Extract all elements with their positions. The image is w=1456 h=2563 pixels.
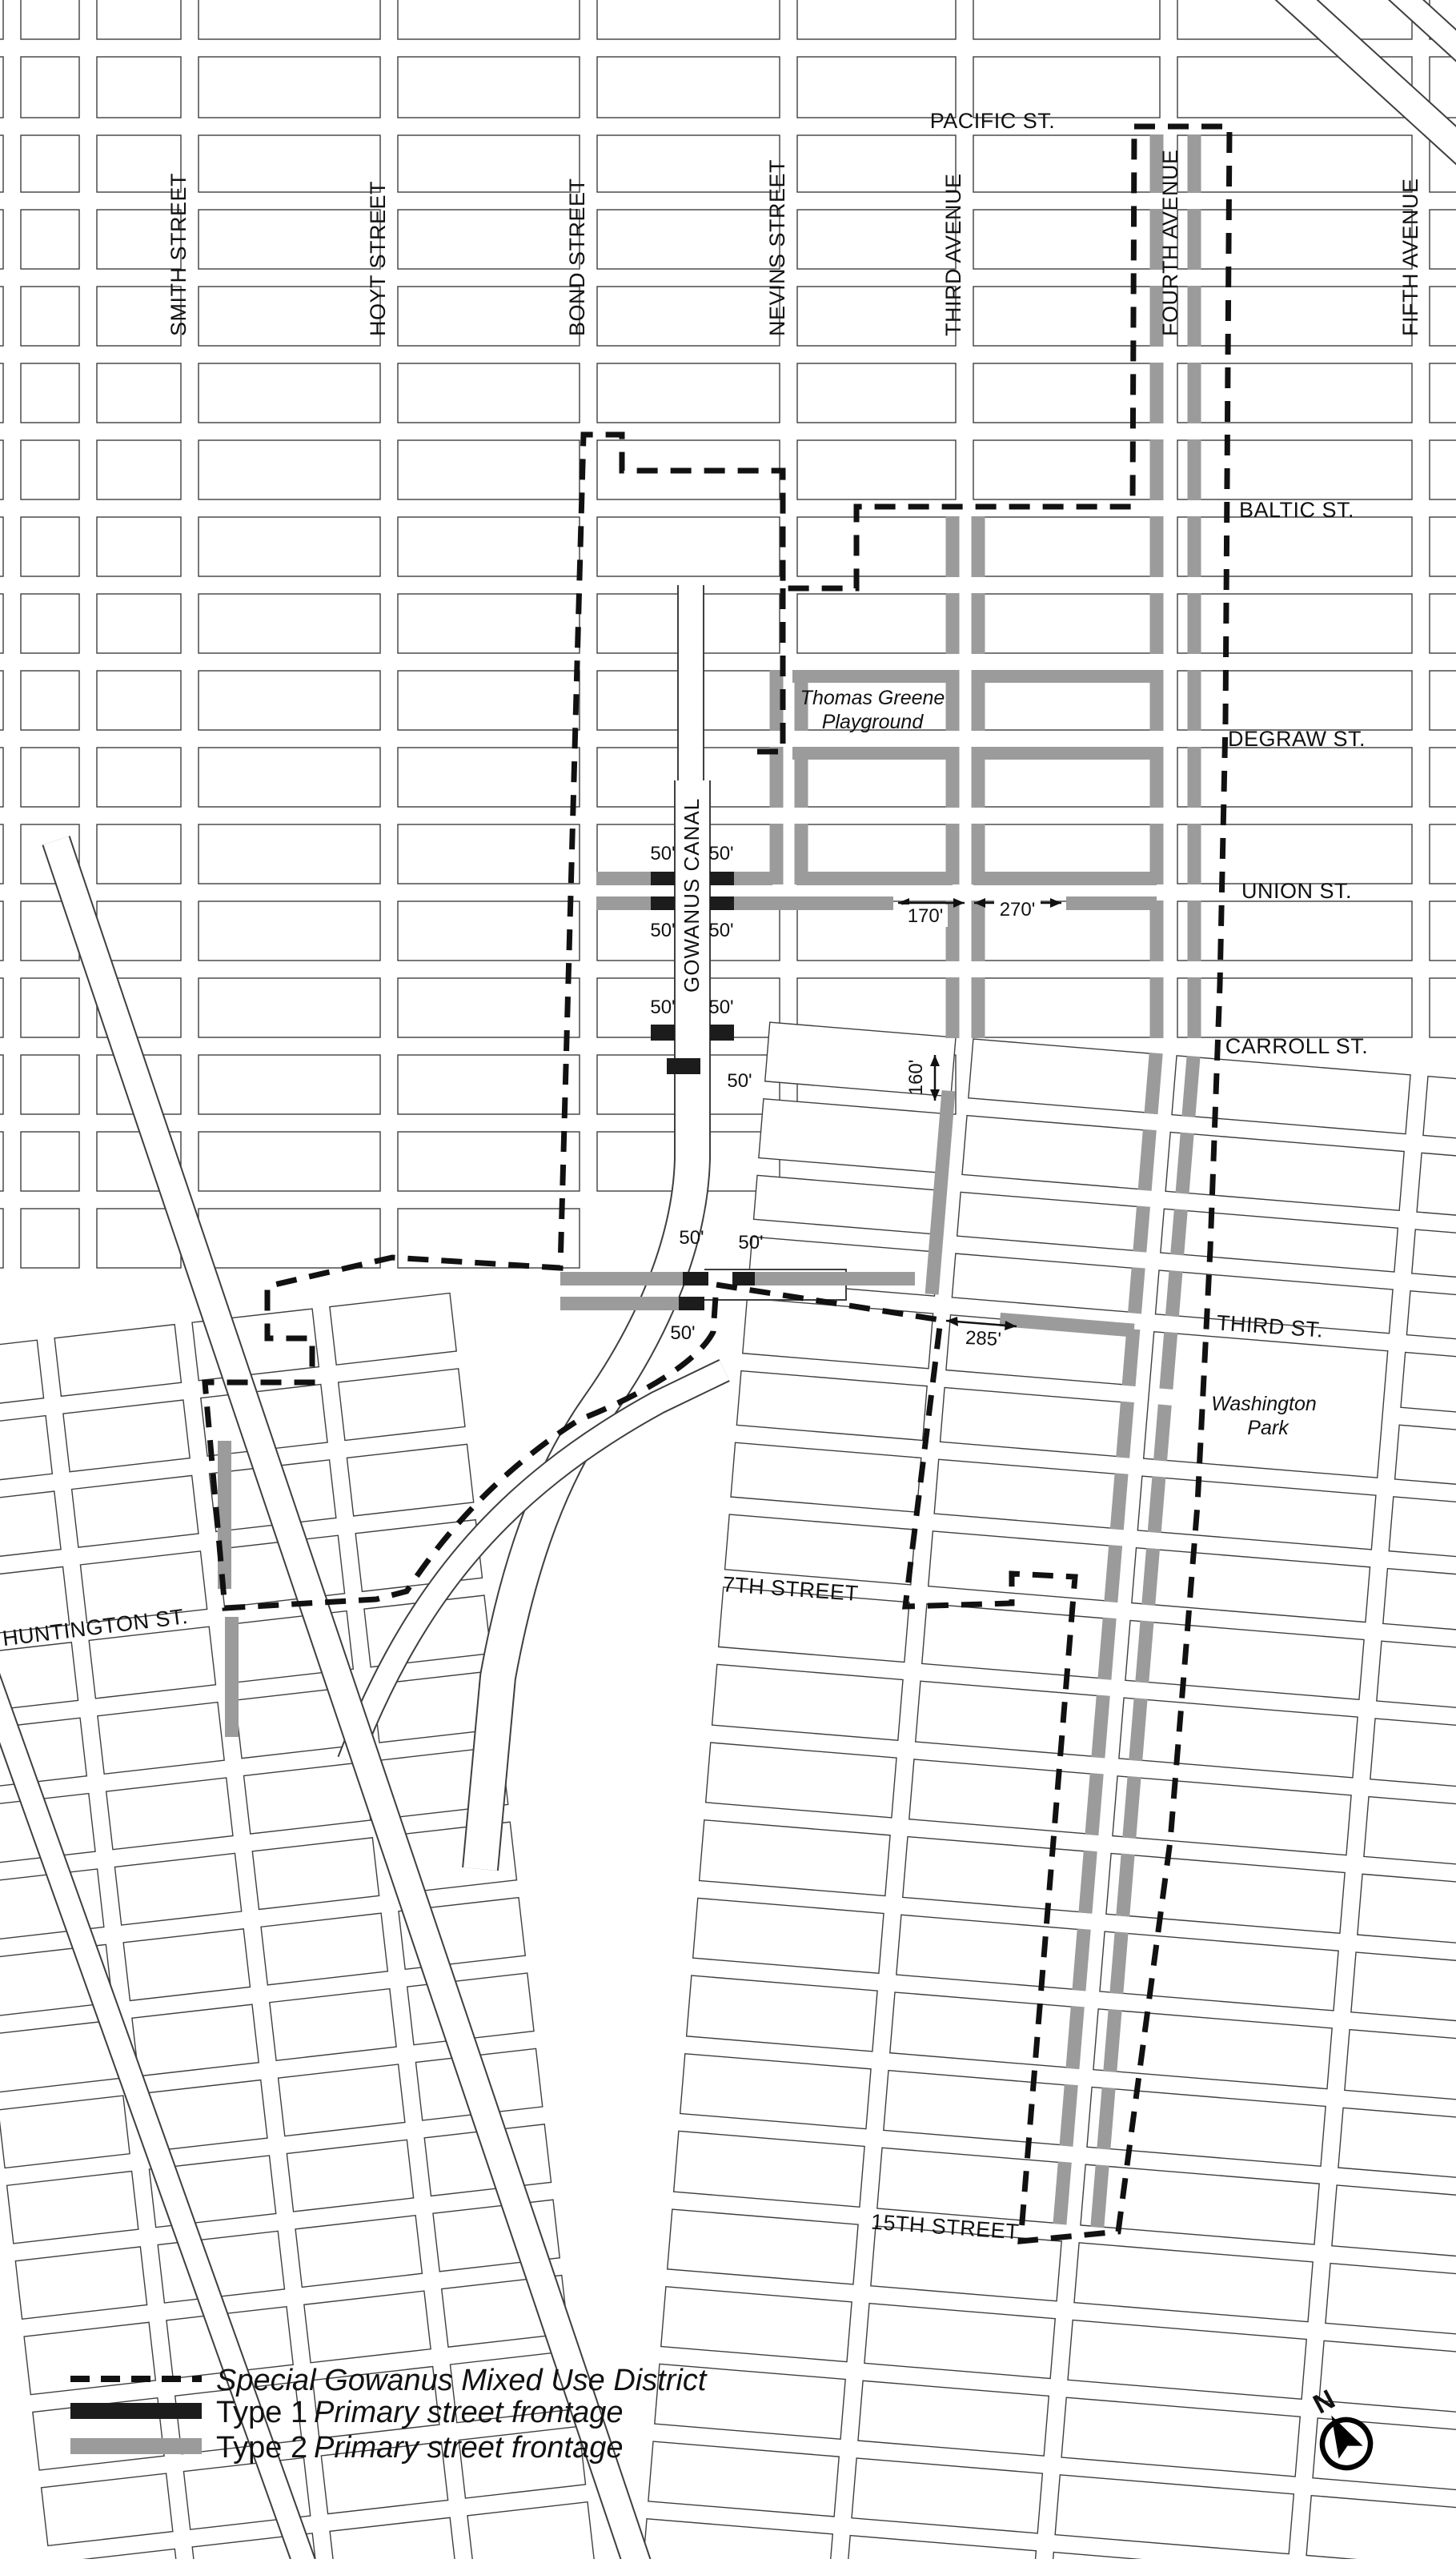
dim-50-carroll-nw: 50': [650, 997, 675, 1018]
street-label-bond: BOND STREET: [565, 178, 589, 336]
city-block: [680, 2054, 871, 2129]
city-block: [973, 978, 1160, 1037]
type2-frontage-bar: [946, 900, 960, 961]
city-block: [0, 440, 3, 499]
city-block: [97, 594, 181, 653]
city-block: [1161, 1209, 1398, 1272]
city-block: [661, 2287, 852, 2362]
street-label-carroll: CARROLL ST.: [1225, 1034, 1369, 1058]
street-label-nevins: NEVINS STREET: [765, 159, 789, 336]
city-block: [97, 824, 181, 884]
city-block: [347, 1444, 473, 1516]
type2-frontage-bar: [1150, 900, 1164, 961]
city-blocks-southeast: [642, 1022, 1456, 2559]
city-block: [54, 1325, 181, 1397]
type2-frontage-bar: [1188, 670, 1201, 731]
city-block: [0, 1209, 3, 1268]
city-block: [973, 594, 1160, 653]
city-block: [1345, 2030, 1456, 2110]
park-label-line1: Washington: [1211, 1393, 1317, 1415]
type2-frontage-bar: [1188, 134, 1201, 193]
type2-frontage-bar: [1188, 593, 1201, 654]
type2-frontage-bar: [795, 824, 808, 884]
city-block: [0, 57, 3, 118]
city-block: [330, 2517, 456, 2559]
city-block: [21, 363, 79, 423]
city-block: [896, 1915, 1087, 1990]
city-block: [295, 2216, 422, 2288]
city-block: [398, 0, 580, 39]
city-block: [1351, 1952, 1456, 2032]
legend-swatch-type2: [70, 2438, 202, 2454]
city-block: [21, 1132, 79, 1191]
city-block: [1423, 1077, 1456, 1155]
dim-50-basin-ne: 50': [738, 1232, 763, 1253]
city-block: [597, 0, 780, 39]
city-block: [0, 1491, 61, 1563]
city-block: [21, 1055, 79, 1114]
type2-frontage-bar: [1188, 900, 1201, 961]
city-block: [952, 1253, 1141, 1313]
city-block: [648, 2441, 839, 2517]
type2-frontage-bar: [795, 747, 808, 808]
city-block: [21, 287, 79, 346]
city-block: [398, 748, 580, 807]
city-block: [929, 1531, 1119, 1602]
city-block: [1358, 1874, 1456, 1954]
city-block: [244, 1762, 371, 1834]
city-block: [957, 1192, 1147, 1251]
city-block: [1055, 2475, 1294, 2554]
city-block: [941, 1388, 1131, 1458]
city-block: [597, 210, 780, 269]
legend-swatch-type1: [70, 2403, 202, 2419]
city-block: [199, 594, 380, 653]
city-block: [0, 1132, 3, 1191]
city-block: [304, 2291, 431, 2363]
city-block: [1049, 2553, 1287, 2559]
street-label-pacific: PACIFIC ST.: [930, 109, 1056, 133]
type2-frontage-bar: [1150, 747, 1164, 808]
type2-frontage-bar: [946, 593, 960, 654]
street-label-baltic: BALTIC ST.: [1239, 498, 1354, 522]
city-block: [1177, 135, 1412, 192]
legend-prefix-type1: Type 1: [216, 2396, 307, 2429]
city-block: [597, 57, 780, 118]
city-block: [1430, 671, 1456, 730]
type2-frontage-bar: [1188, 824, 1201, 884]
city-block: [398, 135, 580, 192]
city-block: [97, 517, 181, 576]
city-block: [339, 1369, 465, 1441]
city-block: [1377, 1641, 1456, 1720]
type2-frontage-bar: [1150, 824, 1164, 884]
city-block: [106, 1778, 233, 1850]
city-block: [123, 1929, 250, 2001]
park-label-line2: Park: [1247, 1417, 1290, 1439]
city-block: [1165, 1133, 1404, 1211]
city-block: [1364, 1797, 1456, 1876]
type2-frontage-bar: [1188, 209, 1201, 270]
legend-label-type1: Primary street frontage: [314, 2396, 623, 2429]
city-block: [199, 440, 380, 499]
city-block: [0, 901, 3, 961]
city-block: [1395, 1425, 1456, 1498]
city-block: [199, 1055, 380, 1114]
city-block: [279, 2064, 405, 2136]
legend-prefix-type2: Type 2: [216, 2431, 307, 2465]
city-block: [398, 210, 580, 269]
dim-50-basin-nw: 50': [679, 1227, 704, 1249]
city-block: [199, 287, 380, 346]
type2-frontage-bar: [770, 824, 784, 884]
city-block: [1177, 363, 1412, 423]
city-block: [1093, 2009, 1332, 2089]
city-block: [797, 363, 956, 423]
city-block: [674, 2131, 864, 2207]
city-block: [693, 1898, 884, 1973]
city-block: [1177, 210, 1412, 269]
gowanus-canal-label: GOWANUS CANAL: [680, 798, 704, 993]
city-block: [852, 2458, 1042, 2533]
type2-frontage-bar: [1150, 670, 1164, 731]
city-block: [1177, 748, 1412, 807]
city-block: [597, 517, 780, 576]
city-block: [1113, 1776, 1351, 1855]
type2-frontage-bar: [1188, 363, 1201, 423]
city-block: [1332, 2185, 1456, 2265]
city-block: [754, 1175, 944, 1234]
city-block: [398, 824, 580, 884]
city-block: [1119, 1698, 1358, 1778]
city-block: [398, 287, 580, 346]
city-block: [199, 671, 380, 730]
city-block: [0, 594, 3, 653]
city-block: [63, 1400, 190, 1472]
city-block: [712, 1664, 903, 1740]
street-label-third-ave: THIRD AVENUE: [941, 173, 965, 336]
city-block: [252, 1838, 379, 1910]
city-block: [97, 748, 181, 807]
city-block: [797, 517, 956, 576]
type2-frontage-bar: [1188, 516, 1201, 577]
city-block: [97, 440, 181, 499]
city-block: [114, 1853, 241, 1925]
city-block: [1430, 824, 1456, 884]
city-block: [1172, 1056, 1410, 1134]
city-block: [797, 210, 956, 269]
type2-frontage-bar: [972, 977, 985, 1038]
city-block: [199, 824, 380, 884]
city-block: [700, 1820, 890, 1896]
city-block: [0, 1055, 3, 1114]
city-block: [797, 594, 956, 653]
dim-50-union-ne: 50': [708, 843, 733, 864]
type2-frontage-bar: [1150, 439, 1164, 500]
type2-frontage-bar: [770, 747, 784, 808]
city-block: [903, 1837, 1093, 1913]
street-label-union: UNION ST.: [1241, 879, 1352, 903]
city-block: [0, 1416, 52, 1488]
city-block: [0, 2096, 130, 2168]
city-block: [0, 0, 3, 39]
city-block: [797, 440, 956, 499]
city-block: [199, 978, 380, 1037]
type2-frontage-bar: [1188, 286, 1201, 347]
city-block: [398, 594, 580, 653]
city-block: [973, 517, 1160, 576]
city-block: [398, 901, 580, 961]
city-block: [1081, 2164, 1319, 2244]
city-block: [97, 57, 181, 118]
city-block: [50, 2549, 181, 2559]
type2-frontage-bar: [972, 670, 985, 731]
city-block: [1326, 2264, 1456, 2343]
city-block: [916, 1681, 1106, 1757]
city-block: [467, 2502, 594, 2559]
city-block: [199, 0, 380, 39]
city-block: [1430, 363, 1456, 423]
city-block: [21, 594, 79, 653]
city-block: [24, 2322, 155, 2394]
city-block: [1177, 440, 1412, 499]
type2-frontage-bar: [972, 900, 985, 961]
city-block: [706, 1743, 896, 1818]
street-label-hoyt: HOYT STREET: [366, 181, 390, 336]
city-block: [0, 824, 3, 884]
city-block: [1068, 2320, 1306, 2400]
city-block: [597, 135, 780, 192]
city-block: [668, 2209, 858, 2284]
city-block: [1319, 2340, 1456, 2420]
city-block: [1177, 824, 1412, 884]
street-label-fifth-ave: FIFTH AVENUE: [1398, 178, 1422, 336]
city-block: [1177, 287, 1412, 346]
city-block: [0, 517, 3, 576]
street-label-degraw: DEGRAW ST.: [1228, 727, 1366, 751]
city-block: [1412, 1229, 1456, 1293]
city-block: [890, 1992, 1081, 2068]
city-block: [199, 57, 380, 118]
type2-frontage-bar: [1188, 747, 1201, 808]
city-block: [1430, 901, 1456, 961]
type2-frontage-bar: [972, 593, 985, 654]
dim-285: 285': [965, 1327, 1001, 1350]
legend-label-district: Special Gowanus Mixed Use District: [216, 2364, 708, 2397]
city-block: [97, 0, 181, 39]
city-block: [0, 210, 3, 269]
city-block: [969, 1039, 1159, 1113]
city-block: [797, 135, 956, 192]
city-block: [731, 1442, 921, 1512]
city-block: [97, 671, 181, 730]
dim-50-carroll-s: 50': [727, 1070, 752, 1092]
city-block: [330, 1294, 456, 1366]
dim-50-carroll-ne: 50': [708, 997, 733, 1018]
city-block: [1177, 901, 1412, 961]
dim-170: 170': [908, 905, 944, 927]
city-block: [1389, 1497, 1456, 1570]
city-block: [0, 748, 3, 807]
city-block: [398, 1055, 580, 1114]
city-block: [21, 210, 79, 269]
city-block: [98, 1703, 224, 1775]
city-block: [864, 2304, 1055, 2379]
type2-frontage-bar: [946, 516, 960, 577]
city-block: [0, 1642, 78, 1715]
city-block: [1430, 978, 1456, 1037]
city-block: [7, 2172, 138, 2244]
city-block: [1177, 978, 1412, 1037]
city-block: [398, 671, 580, 730]
city-block: [21, 57, 79, 118]
city-block: [21, 748, 79, 807]
city-block: [736, 1371, 927, 1441]
city-block: [845, 2536, 1036, 2559]
city-block: [398, 440, 580, 499]
city-block: [1087, 2088, 1326, 2167]
city-block: [21, 135, 79, 192]
city-block: [199, 1209, 380, 1268]
city-block: [398, 517, 580, 576]
city-block: [199, 748, 380, 807]
city-block: [1430, 210, 1456, 269]
legend-item-district: Special Gowanus Mixed Use District: [70, 2364, 708, 2397]
legend-label-type2: Primary street frontage: [314, 2431, 623, 2465]
type2-frontage-bar: [1188, 439, 1201, 500]
city-block: [962, 1116, 1153, 1190]
type2-frontage-bar: [972, 824, 985, 884]
dim-50-union-se: 50': [708, 920, 733, 941]
city-block: [1137, 1476, 1376, 1550]
city-block: [199, 517, 380, 576]
city-block: [1430, 594, 1456, 653]
city-block: [21, 440, 79, 499]
city-block: [797, 287, 956, 346]
type2-frontage-bar: [972, 747, 985, 808]
city-block: [97, 901, 181, 961]
city-block: [1338, 2108, 1456, 2187]
city-block: [973, 0, 1160, 39]
street-label-smith: SMITH STREET: [166, 173, 191, 336]
city-block: [743, 1298, 933, 1369]
type2-frontage-bar: [946, 977, 960, 1038]
type2-frontage-bar: [946, 670, 960, 731]
city-block: [287, 2140, 413, 2212]
city-block: [687, 1975, 877, 2052]
city-block: [1074, 2243, 1313, 2322]
city-block: [642, 2519, 832, 2559]
city-block: [1061, 2397, 1300, 2477]
playground-label-line2: Playground: [822, 711, 925, 733]
city-block: [884, 2071, 1074, 2146]
city-block: [199, 901, 380, 961]
legend: Special Gowanus Mixed Use District Type …: [70, 2364, 708, 2465]
type2-frontage-bar: [946, 747, 960, 808]
dim-50-basin-s: 50': [670, 1322, 695, 1344]
city-block: [21, 978, 79, 1037]
city-block: [1125, 1620, 1364, 1699]
city-block: [1106, 1854, 1345, 1934]
city-block: [42, 2473, 173, 2545]
city-block: [0, 978, 3, 1037]
street-label-fourth-ave: FOURTH AVENUE: [1158, 149, 1182, 336]
city-block: [1430, 748, 1456, 807]
city-block: [0, 671, 3, 730]
type2-frontage-bar: [1150, 516, 1164, 577]
city-block: [21, 517, 79, 576]
dim-50-union-sw: 50': [650, 920, 675, 941]
city-block: [21, 1209, 79, 1268]
city-block: [0, 1340, 44, 1412]
city-block: [398, 57, 580, 118]
city-block: [199, 210, 380, 269]
city-block: [1430, 287, 1456, 346]
city-block: [21, 671, 79, 730]
city-block: [261, 1913, 387, 1985]
city-block: [97, 363, 181, 423]
city-block: [1430, 440, 1456, 499]
type2-frontage-bar: [1188, 977, 1201, 1038]
city-block: [909, 1759, 1100, 1835]
playground-label-line1: Thomas Greene: [800, 687, 945, 709]
city-block: [132, 2004, 259, 2076]
city-block: [597, 363, 780, 423]
city-block: [21, 0, 79, 39]
type2-frontage-bar: [1150, 593, 1164, 654]
city-block: [270, 1989, 396, 2061]
type2-frontage-bar: [946, 824, 960, 884]
type2-frontage-bar: [1150, 977, 1164, 1038]
city-block: [1100, 1931, 1338, 2011]
type2-frontage-bar: [1150, 363, 1164, 423]
city-block: [1406, 1291, 1456, 1354]
city-block: [1430, 517, 1456, 576]
city-block: [199, 135, 380, 192]
city-block: [1177, 517, 1412, 576]
city-block: [1177, 671, 1412, 730]
city-block: [199, 1132, 380, 1191]
type2-frontage-bar: [972, 516, 985, 577]
city-block: [1132, 1548, 1370, 1622]
city-block: [597, 287, 780, 346]
city-block: [1401, 1353, 1456, 1427]
zoning-map: SMITH STREET HOYT STREET BOND STREET NEV…: [0, 0, 1456, 2559]
city-block: [1417, 1153, 1456, 1231]
city-block: [934, 1459, 1125, 1529]
dim-270: 270': [1000, 899, 1036, 921]
city-block: [858, 2381, 1049, 2456]
city-block: [398, 1132, 580, 1191]
city-block: [1383, 1569, 1456, 1643]
city-block: [0, 135, 3, 192]
city-block: [199, 363, 380, 423]
city-block: [0, 287, 3, 346]
dim-50-union-nw: 50': [650, 843, 675, 864]
city-block: [72, 1475, 199, 1547]
city-block: [1177, 594, 1412, 653]
city-block: [1306, 2496, 1456, 2559]
city-block: [1370, 1719, 1456, 1799]
city-block: [797, 0, 956, 39]
dim-160: 160': [905, 1060, 927, 1096]
city-block: [15, 2247, 146, 2319]
city-block: [922, 1604, 1113, 1679]
city-block: [398, 363, 580, 423]
city-block: [0, 363, 3, 423]
city-block: [398, 978, 580, 1037]
